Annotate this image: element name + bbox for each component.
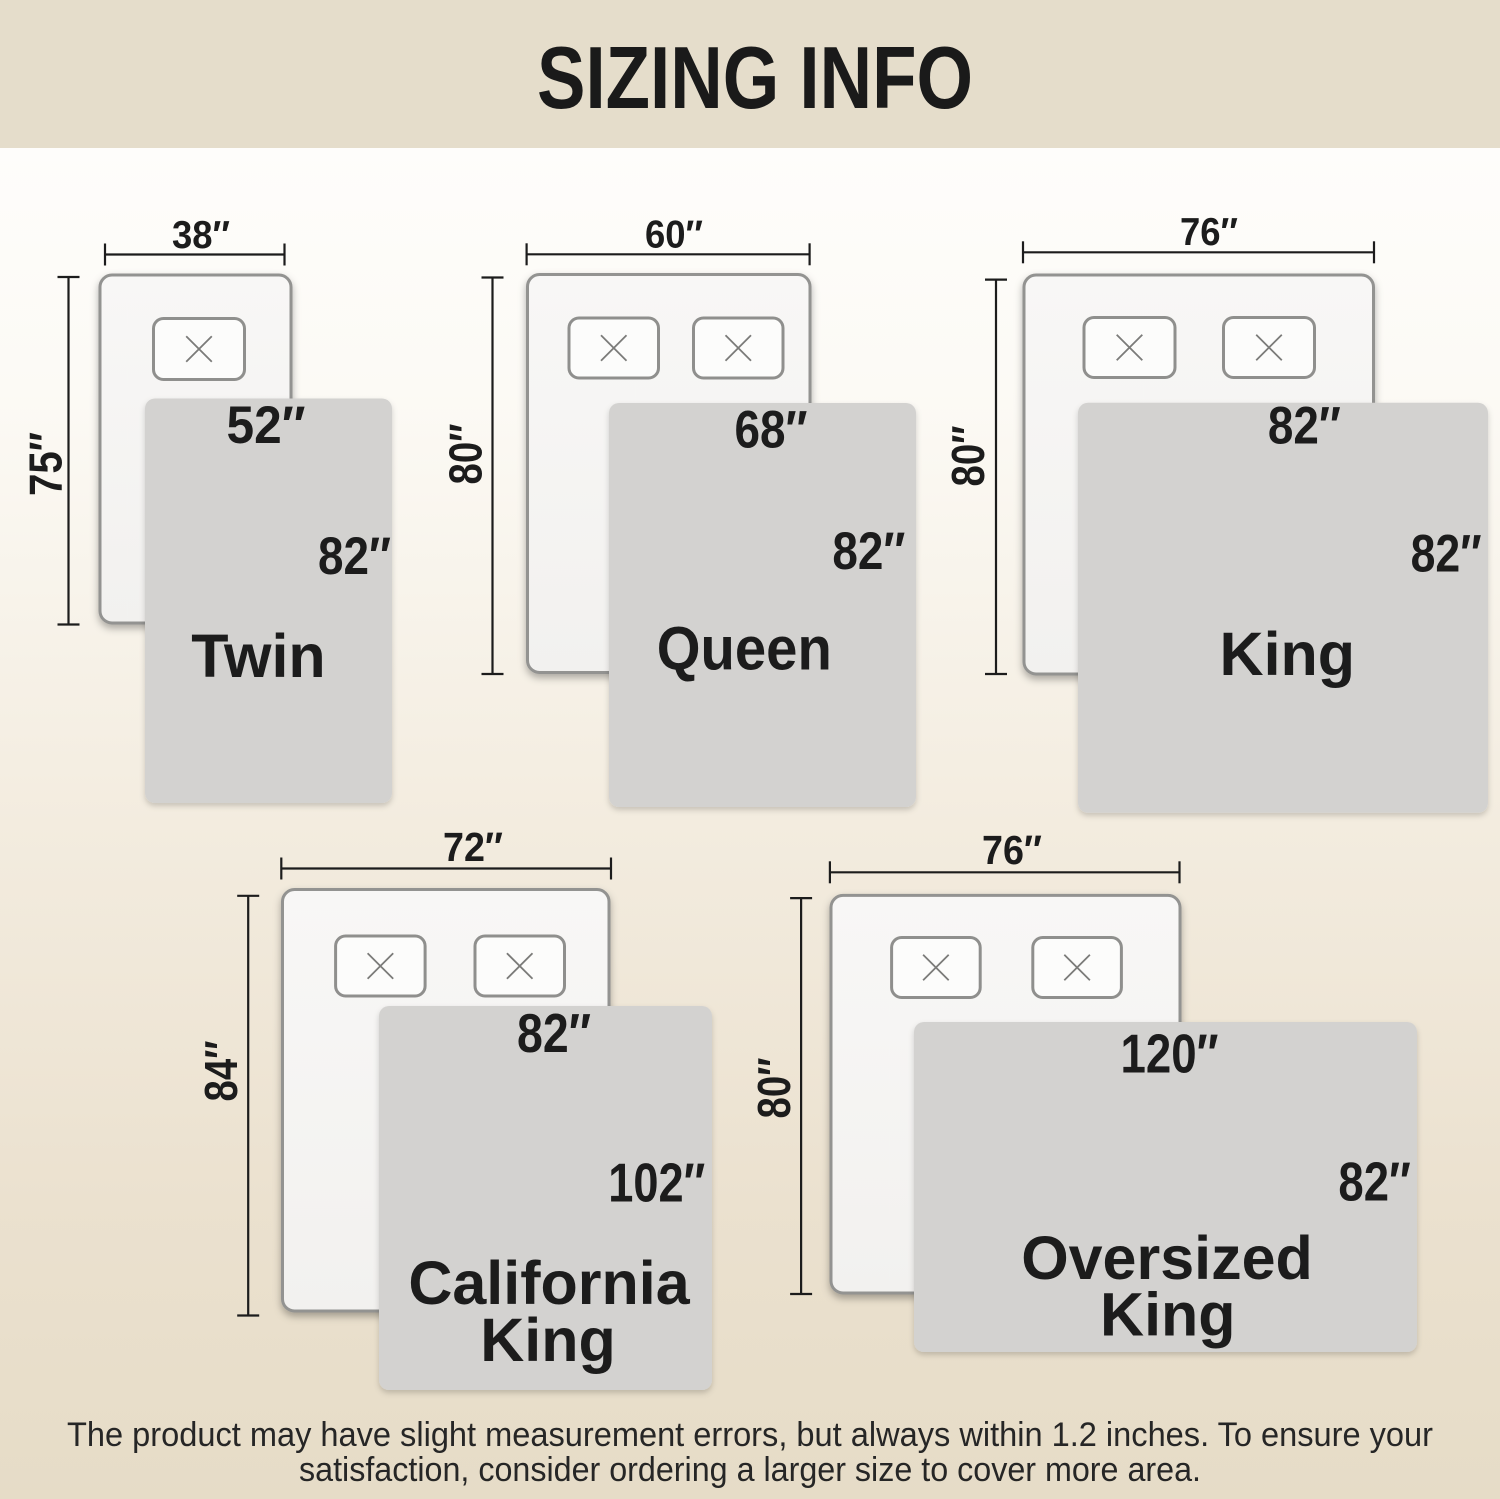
svg-text:SIZING INFO: SIZING INFO: [537, 28, 973, 127]
svg-text:82″: 82″: [1268, 396, 1341, 455]
svg-text:76″: 76″: [982, 827, 1042, 873]
svg-text:102″: 102″: [608, 1151, 705, 1213]
svg-text:72″: 72″: [443, 824, 503, 870]
svg-text:King: King: [1100, 1281, 1236, 1349]
svg-text:82″: 82″: [1338, 1150, 1410, 1212]
svg-text:38″: 38″: [172, 214, 230, 257]
svg-text:82″: 82″: [517, 1002, 591, 1064]
svg-text:82″: 82″: [1411, 525, 1482, 584]
svg-text:76″: 76″: [1180, 211, 1238, 254]
svg-text:82″: 82″: [832, 522, 905, 581]
svg-text:The product may have slight me: The product may have slight measurement …: [67, 1416, 1433, 1454]
svg-text:68″: 68″: [735, 401, 808, 460]
svg-text:52″: 52″: [227, 396, 306, 455]
svg-text:80″: 80″: [942, 426, 994, 487]
svg-text:120″: 120″: [1121, 1022, 1219, 1084]
svg-text:80″: 80″: [440, 424, 492, 485]
svg-text:60″: 60″: [645, 214, 703, 257]
svg-text:King: King: [480, 1306, 616, 1374]
svg-text:Twin: Twin: [191, 622, 325, 690]
svg-text:75″: 75″: [20, 432, 72, 496]
svg-text:King: King: [1220, 620, 1356, 688]
svg-text:82″: 82″: [318, 527, 391, 586]
svg-text:84″: 84″: [195, 1041, 247, 1102]
svg-text:Queen: Queen: [657, 615, 832, 683]
svg-text:satisfaction, consider orderin: satisfaction, consider ordering a larger…: [299, 1451, 1201, 1489]
svg-text:80″: 80″: [748, 1058, 800, 1119]
